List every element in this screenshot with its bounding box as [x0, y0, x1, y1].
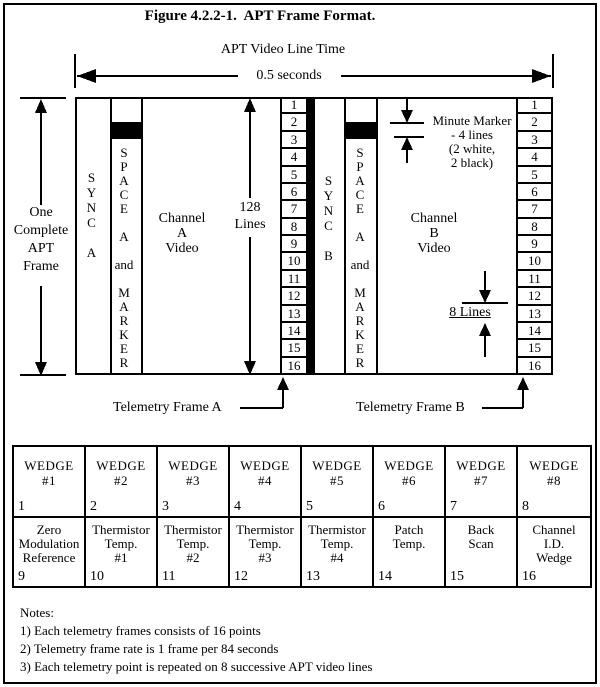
- wedge-label: WEDGE #3: [158, 447, 228, 488]
- wedge-number: 13: [306, 569, 320, 585]
- wedge-label: WEDGE #1: [14, 447, 84, 488]
- wedge-label: WEDGE #7: [446, 447, 516, 488]
- wedge-label: Thermistor Temp. #1: [86, 518, 156, 565]
- wedge-cell: WEDGE #88: [518, 447, 590, 518]
- wedge-label: WEDGE #2: [86, 447, 156, 488]
- wedge-label: WEDGE #8: [518, 447, 590, 488]
- wedge-number: 16: [522, 569, 536, 585]
- wedge-number: 3: [162, 499, 169, 515]
- wedge-number: 4: [234, 499, 241, 515]
- wedge-table: WEDGE #11WEDGE #22WEDGE #33WEDGE #44WEDG…: [12, 445, 592, 588]
- frame-extent-arrow: [20, 98, 66, 376]
- wedge-label: Patch Temp.: [374, 518, 444, 551]
- wedge-number: 11: [162, 569, 175, 585]
- wedge-cell: Zero Modulation Reference9: [14, 518, 86, 586]
- wedge-number: 6: [378, 499, 385, 515]
- wedge-cell: Thermistor Temp. #110: [86, 518, 158, 586]
- wedge-cell: Back Scan15: [446, 518, 518, 586]
- figure-page: Figure 4.2.2-1. APT Frame Format. APT Vi…: [0, 0, 600, 687]
- wedge-cell: WEDGE #55: [302, 447, 374, 518]
- telemetry-b-pointer: [482, 377, 529, 408]
- wedge-number: 14: [378, 569, 392, 585]
- lines-128-arrow: [244, 98, 256, 375]
- wedge-number: 8: [522, 499, 529, 515]
- wedge-number: 10: [90, 569, 104, 585]
- wedge-cell: WEDGE #66: [374, 447, 446, 518]
- wedge-number: 5: [306, 499, 313, 515]
- eight-lines-pointer: [462, 271, 508, 357]
- notes-title: Notes:: [20, 604, 372, 622]
- note-item: 1) Each telemetry frames consists of 16 …: [20, 622, 372, 640]
- wedge-cell: WEDGE #11: [14, 447, 86, 518]
- wedge-label: WEDGE #5: [302, 447, 372, 488]
- wedge-label: Zero Modulation Reference: [14, 518, 84, 565]
- wedge-cell: WEDGE #22: [86, 447, 158, 518]
- wedge-number: 9: [18, 569, 25, 585]
- wedge-number: 12: [234, 569, 248, 585]
- telemetry-a-pointer: [240, 377, 289, 408]
- wedge-number: 15: [450, 569, 464, 585]
- wedge-number: 7: [450, 499, 457, 515]
- wedge-cell: Patch Temp.14: [374, 518, 446, 586]
- wedge-label: Thermistor Temp. #3: [230, 518, 300, 565]
- note-item: 2) Telemetry frame rate is 1 frame per 8…: [20, 640, 372, 658]
- wedge-number: 2: [90, 499, 97, 515]
- wedge-cell: WEDGE #33: [158, 447, 230, 518]
- wedge-cell: Thermistor Temp. #211: [158, 518, 230, 586]
- wedge-cell: WEDGE #77: [446, 447, 518, 518]
- wedge-number: 1: [18, 499, 25, 515]
- note-item: 3) Each telemetry point is repeated on 8…: [20, 658, 372, 676]
- line-time-arrow: [75, 54, 553, 88]
- wedge-label: WEDGE #6: [374, 447, 444, 488]
- wedge-label: Thermistor Temp. #4: [302, 518, 372, 565]
- wedge-cell: Thermistor Temp. #312: [230, 518, 302, 586]
- wedge-label: Thermistor Temp. #2: [158, 518, 228, 565]
- wedge-cell: WEDGE #44: [230, 447, 302, 518]
- notes-block: Notes: 1) Each telemetry frames consists…: [20, 604, 372, 676]
- minute-marker-pointer: [390, 98, 424, 163]
- wedge-cell: Thermistor Temp. #413: [302, 518, 374, 586]
- notes-items: 1) Each telemetry frames consists of 16 …: [20, 622, 372, 676]
- wedge-label: Channel I.D. Wedge: [518, 518, 590, 565]
- wedge-label: Back Scan: [446, 518, 516, 551]
- wedge-cell: Channel I.D. Wedge16: [518, 518, 590, 586]
- wedge-label: WEDGE #4: [230, 447, 300, 488]
